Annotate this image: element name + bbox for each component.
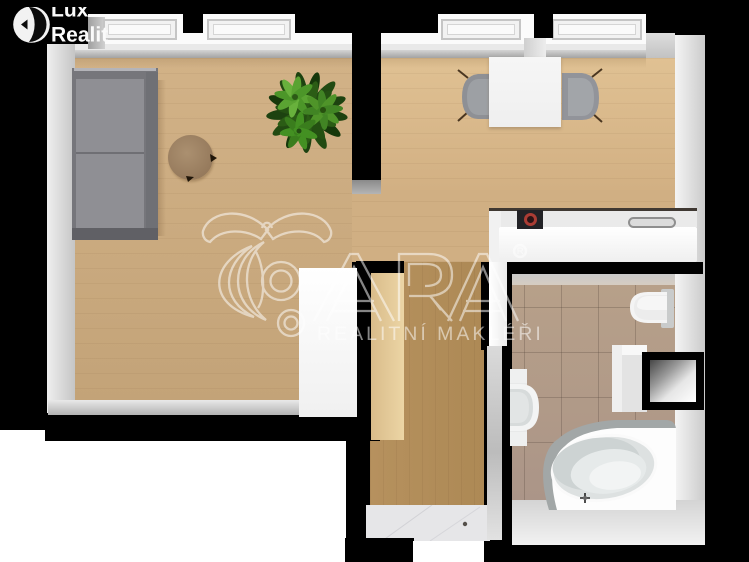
svg-text:Realit: Realit	[51, 24, 108, 47]
svg-text:REALITNÍ MAKLÉŘI: REALITNÍ MAKLÉŘI	[317, 322, 544, 345]
